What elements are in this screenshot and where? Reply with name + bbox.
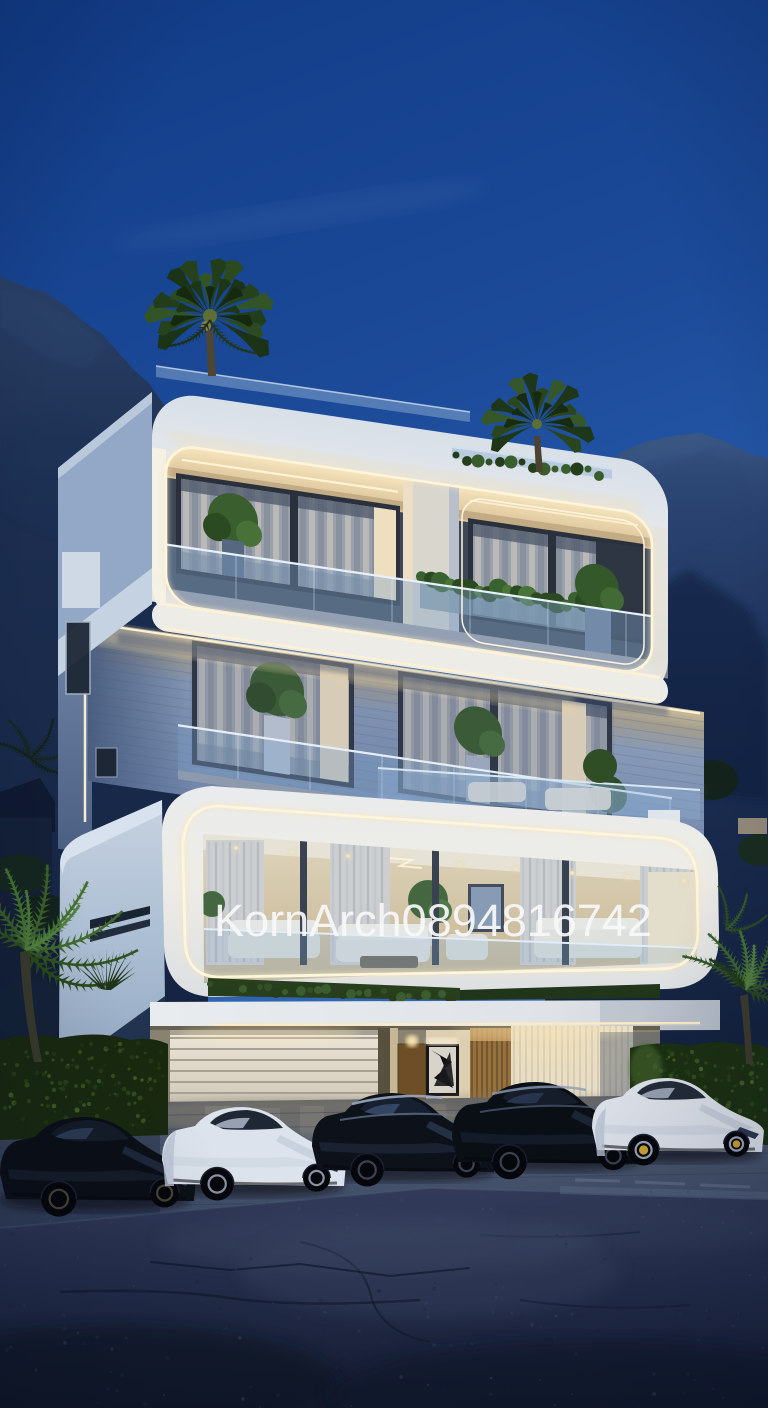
- svg-text:KornArch0894816742: KornArch0894816742: [214, 895, 652, 946]
